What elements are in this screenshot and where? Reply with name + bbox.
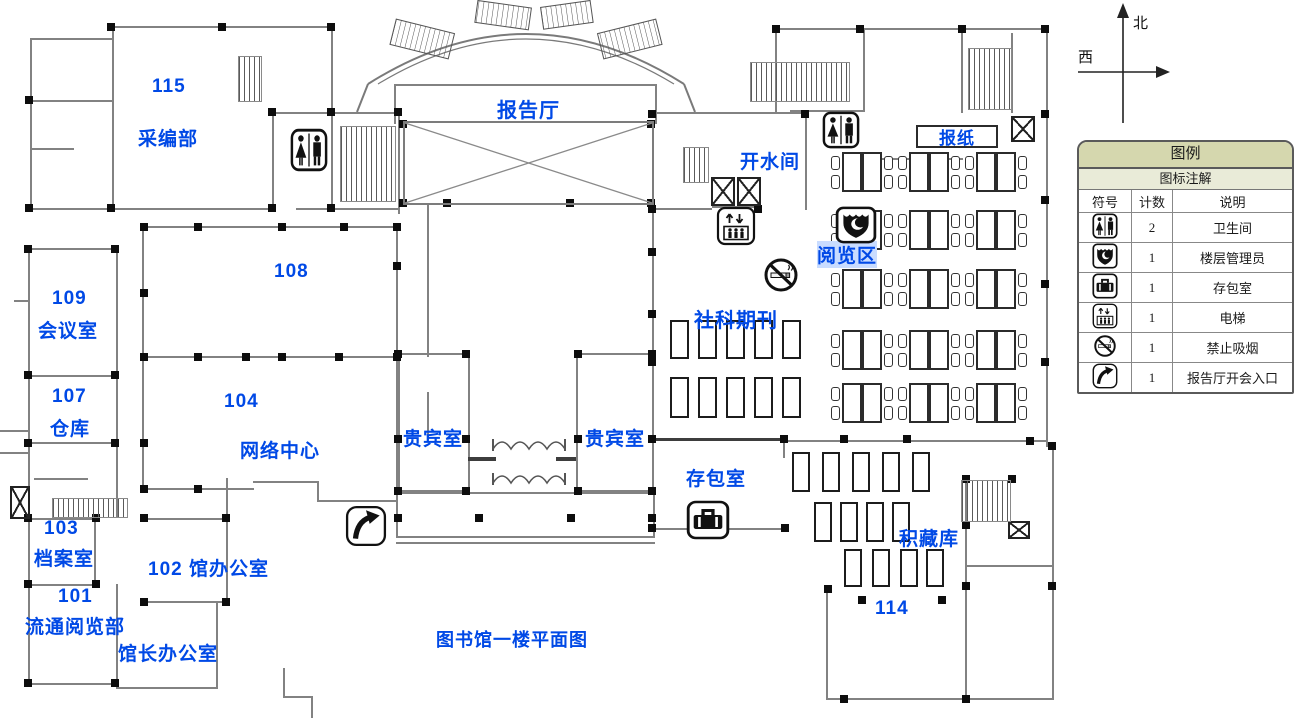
column: [194, 223, 202, 231]
column: [648, 514, 656, 522]
elevator-shaft: [1011, 116, 1035, 142]
reading-table: [929, 383, 949, 423]
chair: [1018, 175, 1027, 189]
column: [567, 514, 575, 522]
column: [140, 439, 148, 447]
wall: [396, 542, 655, 544]
wall: [0, 452, 28, 454]
column: [340, 223, 348, 231]
column: [1041, 25, 1049, 33]
bag-storage-icon: [686, 500, 730, 545]
toilet-stalls-west: [340, 126, 396, 202]
column: [394, 487, 402, 495]
vip-room-right-label: 贵宾室: [585, 424, 645, 451]
column: [648, 310, 656, 318]
wall: [863, 30, 865, 112]
column: [648, 358, 656, 366]
chair: [951, 175, 960, 189]
column: [140, 223, 148, 231]
lobby-cross: [403, 121, 654, 205]
chair: [951, 406, 960, 420]
reading-table: [976, 330, 996, 370]
reading-table: [862, 330, 882, 370]
column: [24, 439, 32, 447]
bookshelf: [754, 377, 773, 418]
column: [801, 110, 809, 118]
bookshelf: [698, 377, 717, 418]
chair: [898, 273, 907, 287]
column: [574, 435, 582, 443]
column: [962, 582, 970, 590]
wall: [30, 100, 112, 102]
wall: [576, 353, 578, 492]
chair: [898, 175, 907, 189]
elevator-icon: [1092, 303, 1118, 333]
chair: [951, 387, 960, 401]
chair: [898, 214, 907, 228]
column: [393, 262, 401, 270]
wall: [112, 28, 114, 210]
bookshelf: [814, 502, 832, 542]
wall: [28, 518, 30, 685]
no-smoking-icon: [1092, 333, 1118, 363]
column: [140, 598, 148, 606]
south-vestibule: [487, 433, 569, 489]
chair: [965, 214, 974, 228]
chair: [965, 353, 974, 367]
column: [1048, 582, 1056, 590]
column: [194, 485, 202, 493]
column: [840, 695, 848, 703]
reading-table: [909, 330, 929, 370]
chair: [951, 334, 960, 348]
chair: [1018, 406, 1027, 420]
column: [462, 487, 470, 495]
chair: [951, 156, 960, 170]
reading-table: [929, 152, 949, 192]
column: [92, 580, 100, 588]
wall: [311, 696, 313, 718]
wall: [142, 518, 228, 520]
chair: [951, 214, 960, 228]
chair: [951, 353, 960, 367]
chair: [831, 334, 840, 348]
column: [648, 205, 656, 213]
column: [24, 679, 32, 687]
wall: [468, 353, 470, 492]
chair: [965, 273, 974, 287]
lecture-entrance-icon: [1092, 363, 1118, 393]
wall: [653, 208, 712, 210]
chair: [884, 233, 893, 247]
column: [962, 521, 970, 529]
reading-table: [929, 269, 949, 309]
reading-table: [996, 269, 1016, 309]
elevator-shaft: [737, 177, 761, 206]
column: [1048, 442, 1056, 450]
chair: [884, 175, 893, 189]
wall: [396, 536, 655, 538]
wall: [961, 33, 963, 113]
column: [140, 289, 148, 297]
wall: [283, 696, 313, 698]
chair: [898, 156, 907, 170]
reading-table: [909, 152, 929, 192]
wall: [30, 208, 274, 210]
column: [475, 514, 483, 522]
reading-table: [842, 269, 862, 309]
reading-table: [976, 152, 996, 192]
stairs-room-103: [52, 498, 128, 518]
column: [140, 514, 148, 522]
column: [780, 435, 788, 443]
chair: [1018, 353, 1027, 367]
column: [140, 485, 148, 493]
chair: [831, 406, 840, 420]
room-103-name: 档案室: [34, 544, 94, 571]
compass-west-label: 西: [1078, 46, 1093, 67]
wall: [28, 375, 116, 377]
room-101-name: 流通阅览部: [25, 612, 125, 639]
reading-table: [996, 210, 1016, 250]
chair: [884, 406, 893, 420]
wall: [653, 438, 785, 441]
column: [278, 353, 286, 361]
wall: [427, 205, 429, 357]
chair: [965, 233, 974, 247]
wall: [253, 481, 319, 483]
column: [111, 439, 119, 447]
floor-plan: 报纸 115 采编部 报告厅 开水间 阅览区 社科期刊 109 会议室 107 …: [0, 0, 1294, 723]
column: [24, 371, 32, 379]
column: [111, 371, 119, 379]
legend: 图例 图标注解 符号 计数 说明 2 卫生间 1 楼层管理员 1 存包室 1 电…: [1077, 140, 1294, 394]
chair: [898, 292, 907, 306]
room-107-number: 107: [52, 386, 87, 408]
bookshelf: [926, 549, 944, 587]
chair: [898, 353, 907, 367]
wall: [331, 26, 333, 210]
elevator-icon: [716, 206, 756, 251]
bookshelf: [822, 452, 840, 492]
toilet-stalls-north: [750, 62, 850, 102]
stairs-hot-water: [683, 147, 709, 183]
reading-table: [862, 269, 882, 309]
wall: [283, 668, 285, 698]
column: [107, 204, 115, 212]
wall: [775, 28, 1048, 30]
wall: [226, 478, 228, 518]
reading-table: [929, 330, 949, 370]
column: [648, 524, 656, 532]
bookshelf: [900, 549, 918, 587]
reading-table: [909, 210, 929, 250]
newspaper-label: 报纸: [939, 124, 975, 149]
elevator-shaft: [10, 486, 30, 519]
column: [648, 435, 656, 443]
reading-table: [976, 269, 996, 309]
column: [1041, 110, 1049, 118]
column: [218, 23, 226, 31]
column: [25, 204, 33, 212]
column: [462, 435, 470, 443]
column: [856, 25, 864, 33]
legend-col-symbol: 符号: [1079, 190, 1132, 212]
column: [772, 25, 780, 33]
chair: [898, 334, 907, 348]
chair: [1018, 273, 1027, 287]
chair: [1018, 334, 1027, 348]
column: [24, 580, 32, 588]
restroom-icon: [1092, 213, 1118, 243]
column: [393, 223, 401, 231]
room-114-number: 114: [875, 598, 909, 620]
column: [222, 514, 230, 522]
plan-title: 图书馆一楼平面图: [436, 626, 588, 652]
column: [1026, 437, 1034, 445]
elevator-shaft: [1008, 521, 1030, 539]
compass-north-label: 北: [1133, 12, 1148, 33]
bookshelf: [912, 452, 930, 492]
wall: [783, 440, 1048, 442]
reading-table: [842, 152, 862, 192]
wall: [1052, 445, 1054, 698]
bag-storage-icon: [1092, 273, 1118, 303]
reading-table: [996, 383, 1016, 423]
column: [222, 598, 230, 606]
column: [25, 96, 33, 104]
column: [242, 353, 250, 361]
room-104-name: 网络中心: [240, 436, 320, 463]
bookshelf: [872, 549, 890, 587]
column: [958, 25, 966, 33]
column: [394, 435, 402, 443]
room-104-number: 104: [224, 391, 259, 413]
reading-table: [842, 330, 862, 370]
chair: [965, 406, 974, 420]
bookshelf: [882, 452, 900, 492]
wall: [116, 687, 218, 689]
wall: [28, 683, 118, 685]
legend-row-floor-manager: 1 楼层管理员: [1079, 243, 1292, 273]
lecture-entrance-icon: [345, 505, 387, 552]
wall: [965, 698, 1054, 700]
wall: [398, 353, 470, 355]
newspaper-rack: 报纸: [916, 125, 998, 148]
chair: [884, 387, 893, 401]
floor-manager-icon: [835, 206, 877, 249]
column: [1041, 196, 1049, 204]
chair: [831, 273, 840, 287]
wall: [28, 248, 30, 442]
bookshelf: [782, 320, 801, 359]
bookshelf: [726, 377, 745, 418]
wall: [30, 38, 32, 210]
wall: [317, 500, 398, 502]
stack-room-label: 积藏库: [899, 524, 959, 551]
room-108-number: 108: [274, 261, 309, 283]
wall: [396, 492, 655, 494]
wall: [94, 518, 96, 586]
column: [327, 108, 335, 116]
wall: [805, 112, 807, 210]
column: [394, 350, 402, 358]
column: [1041, 280, 1049, 288]
room-101-number: 101: [58, 586, 93, 608]
bookshelf: [782, 377, 801, 418]
chair: [951, 292, 960, 306]
column: [462, 350, 470, 358]
wall: [30, 38, 114, 40]
reading-table: [996, 330, 1016, 370]
reading-table: [842, 383, 862, 423]
bookshelf: [670, 320, 689, 359]
column: [268, 108, 276, 116]
wall: [28, 248, 116, 250]
column: [858, 596, 866, 604]
director-office-label: 馆长办公室: [118, 639, 218, 666]
room-115-name: 采编部: [138, 124, 198, 151]
wall: [965, 565, 1052, 567]
bookshelf: [792, 452, 810, 492]
column: [1041, 358, 1049, 366]
legend-row-elevator: 1 电梯: [1079, 303, 1292, 333]
legend-title: 图例: [1079, 142, 1292, 169]
stairs-southeast: [961, 480, 1011, 522]
wall: [28, 442, 116, 444]
chair: [898, 387, 907, 401]
chair: [965, 175, 974, 189]
floor-manager-icon: [1092, 243, 1118, 273]
column: [327, 23, 335, 31]
bookshelf: [670, 377, 689, 418]
wall: [398, 353, 400, 492]
reading-table: [976, 383, 996, 423]
legend-col-desc: 说明: [1173, 190, 1292, 212]
wall: [34, 478, 88, 480]
wall: [272, 112, 274, 210]
column: [194, 353, 202, 361]
wall: [142, 226, 398, 228]
chair: [831, 353, 840, 367]
column: [278, 223, 286, 231]
vip-room-left-label: 贵宾室: [403, 424, 463, 451]
chair: [831, 156, 840, 170]
wall: [826, 588, 828, 698]
reading-table: [909, 383, 929, 423]
chair: [884, 214, 893, 228]
chair: [898, 233, 907, 247]
column: [24, 245, 32, 253]
wall: [317, 481, 319, 502]
reading-table: [976, 210, 996, 250]
social-periodicals-label: 社科期刊: [694, 304, 778, 333]
hot-water-room-label: 开水间: [740, 147, 800, 174]
bookshelf: [852, 452, 870, 492]
room-109-number: 109: [52, 288, 87, 310]
chair: [898, 406, 907, 420]
bag-storage-label: 存包室: [686, 464, 746, 491]
wall: [0, 430, 28, 432]
chair: [1018, 233, 1027, 247]
column: [140, 353, 148, 361]
lecture-hall-label: 报告厅: [497, 94, 560, 123]
chair: [884, 273, 893, 287]
column: [107, 23, 115, 31]
chair: [884, 334, 893, 348]
room-107-name: 仓库: [50, 414, 90, 441]
chair: [1018, 156, 1027, 170]
no-smoking-icon: [761, 255, 801, 300]
column: [781, 524, 789, 532]
reading-table: [862, 383, 882, 423]
room-103-number: 103: [44, 518, 79, 540]
wall: [30, 148, 74, 150]
chair: [1018, 387, 1027, 401]
legend-row-no-smoking: 1 禁止吸烟: [1079, 333, 1292, 363]
column: [648, 350, 656, 358]
chair: [831, 387, 840, 401]
chair: [965, 334, 974, 348]
stairs-northeast: [968, 48, 1012, 110]
column: [824, 585, 832, 593]
column: [394, 514, 402, 522]
legend-col-count: 计数: [1132, 190, 1173, 212]
reading-table: [862, 152, 882, 192]
legend-header-row: 符号 计数 说明: [1079, 190, 1292, 213]
chair: [965, 292, 974, 306]
chair: [884, 353, 893, 367]
column: [648, 248, 656, 256]
chair: [831, 292, 840, 306]
chair: [1018, 214, 1027, 228]
wall: [576, 353, 655, 355]
wall: [142, 356, 398, 358]
wall: [296, 208, 400, 210]
restroom-icon: [290, 128, 328, 177]
stairs-west: [238, 56, 262, 102]
room-115-number: 115: [152, 76, 186, 98]
bookshelf: [840, 502, 858, 542]
column: [574, 350, 582, 358]
bookshelf: [866, 502, 884, 542]
column: [111, 679, 119, 687]
chair: [884, 156, 893, 170]
chair: [951, 273, 960, 287]
chair: [965, 156, 974, 170]
column: [574, 487, 582, 495]
legend-subtitle: 图标注解: [1079, 169, 1292, 190]
chair: [1018, 292, 1027, 306]
legend-row-bag-storage: 1 存包室: [1079, 273, 1292, 303]
chair: [884, 292, 893, 306]
column: [648, 487, 656, 495]
bookshelf: [844, 549, 862, 587]
column: [335, 353, 343, 361]
wall: [116, 248, 118, 442]
column: [327, 204, 335, 212]
column: [938, 596, 946, 604]
legend-row-lecture-entrance: 1 报告厅开会入口: [1079, 363, 1292, 392]
chair: [951, 233, 960, 247]
reading-table: [996, 152, 1016, 192]
wall: [14, 300, 30, 302]
legend-row-restroom: 2 卫生间: [1079, 213, 1292, 243]
wall: [1046, 28, 1048, 445]
chair: [831, 175, 840, 189]
chair: [965, 387, 974, 401]
column: [268, 204, 276, 212]
